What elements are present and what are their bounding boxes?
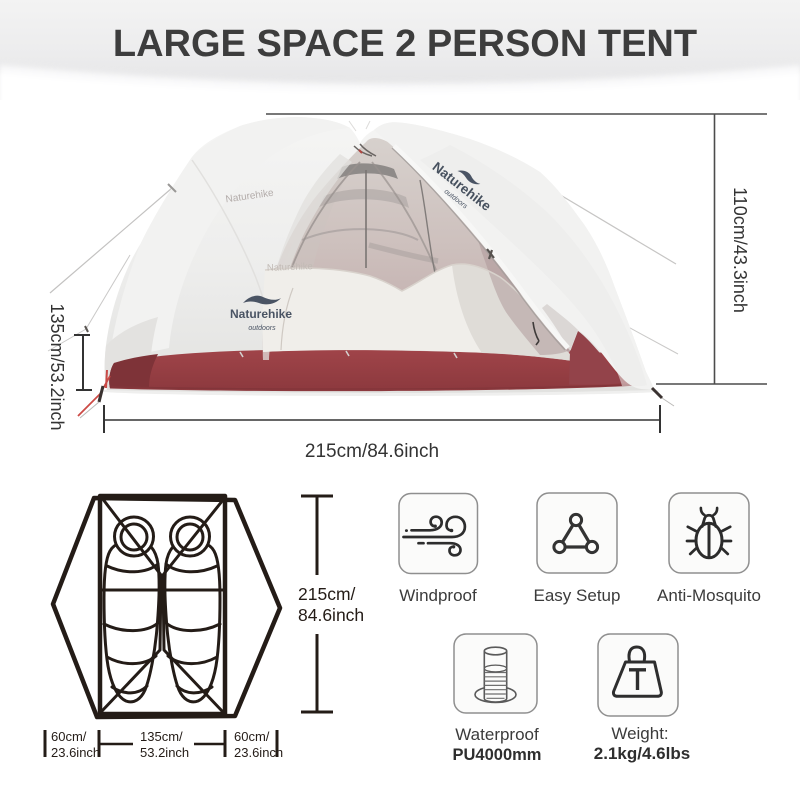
svg-text:135cm/: 135cm/ <box>140 729 183 744</box>
svg-text:Naturehike: Naturehike <box>267 261 313 274</box>
svg-text:Naturehike: Naturehike <box>230 307 292 321</box>
svg-text:2.1kg/4.6lbs: 2.1kg/4.6lbs <box>594 744 690 763</box>
svg-text:23.6inch: 23.6inch <box>51 745 100 760</box>
svg-text:215cm/: 215cm/ <box>298 584 356 604</box>
svg-text:PU4000mm: PU4000mm <box>453 746 542 764</box>
svg-text:23.6inch: 23.6inch <box>234 745 283 760</box>
svg-text:84.6inch: 84.6inch <box>298 605 364 625</box>
svg-text:Easy Setup: Easy Setup <box>534 586 621 605</box>
svg-text:60cm/: 60cm/ <box>51 729 87 744</box>
svg-text:53.2inch: 53.2inch <box>140 745 189 760</box>
svg-text:110cm/43.3inch: 110cm/43.3inch <box>730 187 750 313</box>
svg-text:Anti-Mosquito: Anti-Mosquito <box>657 586 761 605</box>
svg-text:60cm/: 60cm/ <box>234 729 270 744</box>
svg-text:135cm/53.2inch: 135cm/53.2inch <box>47 303 67 430</box>
svg-text:Waterproof: Waterproof <box>455 725 539 744</box>
svg-text:Weight:: Weight: <box>611 724 668 743</box>
svg-text:outdoors: outdoors <box>248 325 276 332</box>
svg-text:LARGE SPACE 2 PERSON TENT: LARGE SPACE 2 PERSON TENT <box>113 23 697 65</box>
svg-text:215cm/84.6inch: 215cm/84.6inch <box>305 441 439 462</box>
svg-text:Windproof: Windproof <box>399 586 477 605</box>
